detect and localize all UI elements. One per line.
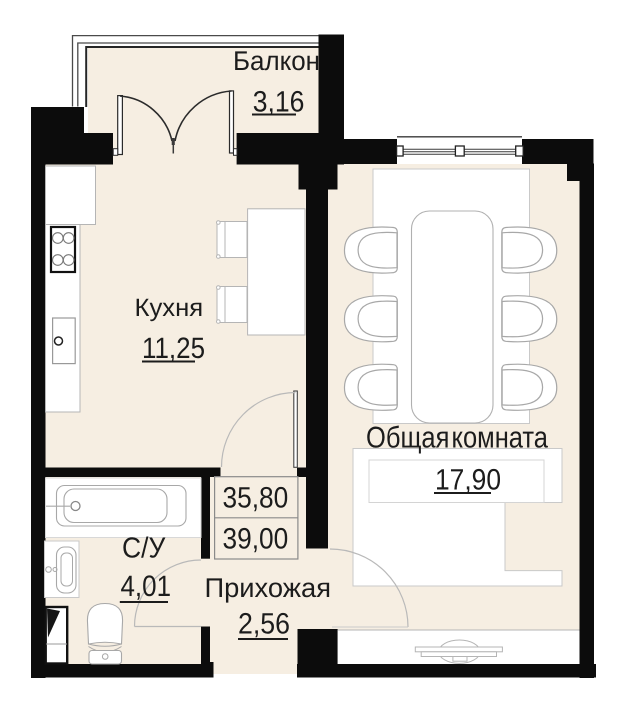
svg-text:Общая комната: Общая комната bbox=[366, 422, 548, 455]
svg-text:Балкон: Балкон bbox=[233, 46, 320, 76]
svg-text:17,90: 17,90 bbox=[435, 464, 501, 497]
svg-text:4,01: 4,01 bbox=[121, 570, 172, 603]
svg-text:2,56: 2,56 bbox=[238, 608, 290, 641]
svg-text:Прихожая: Прихожая bbox=[205, 573, 332, 603]
svg-text:Кухня: Кухня bbox=[135, 294, 204, 322]
svg-text:39,00: 39,00 bbox=[223, 523, 289, 556]
svg-text:С/У: С/У bbox=[122, 533, 166, 565]
svg-text:35,80: 35,80 bbox=[223, 482, 289, 515]
svg-text:11,25: 11,25 bbox=[142, 332, 205, 365]
